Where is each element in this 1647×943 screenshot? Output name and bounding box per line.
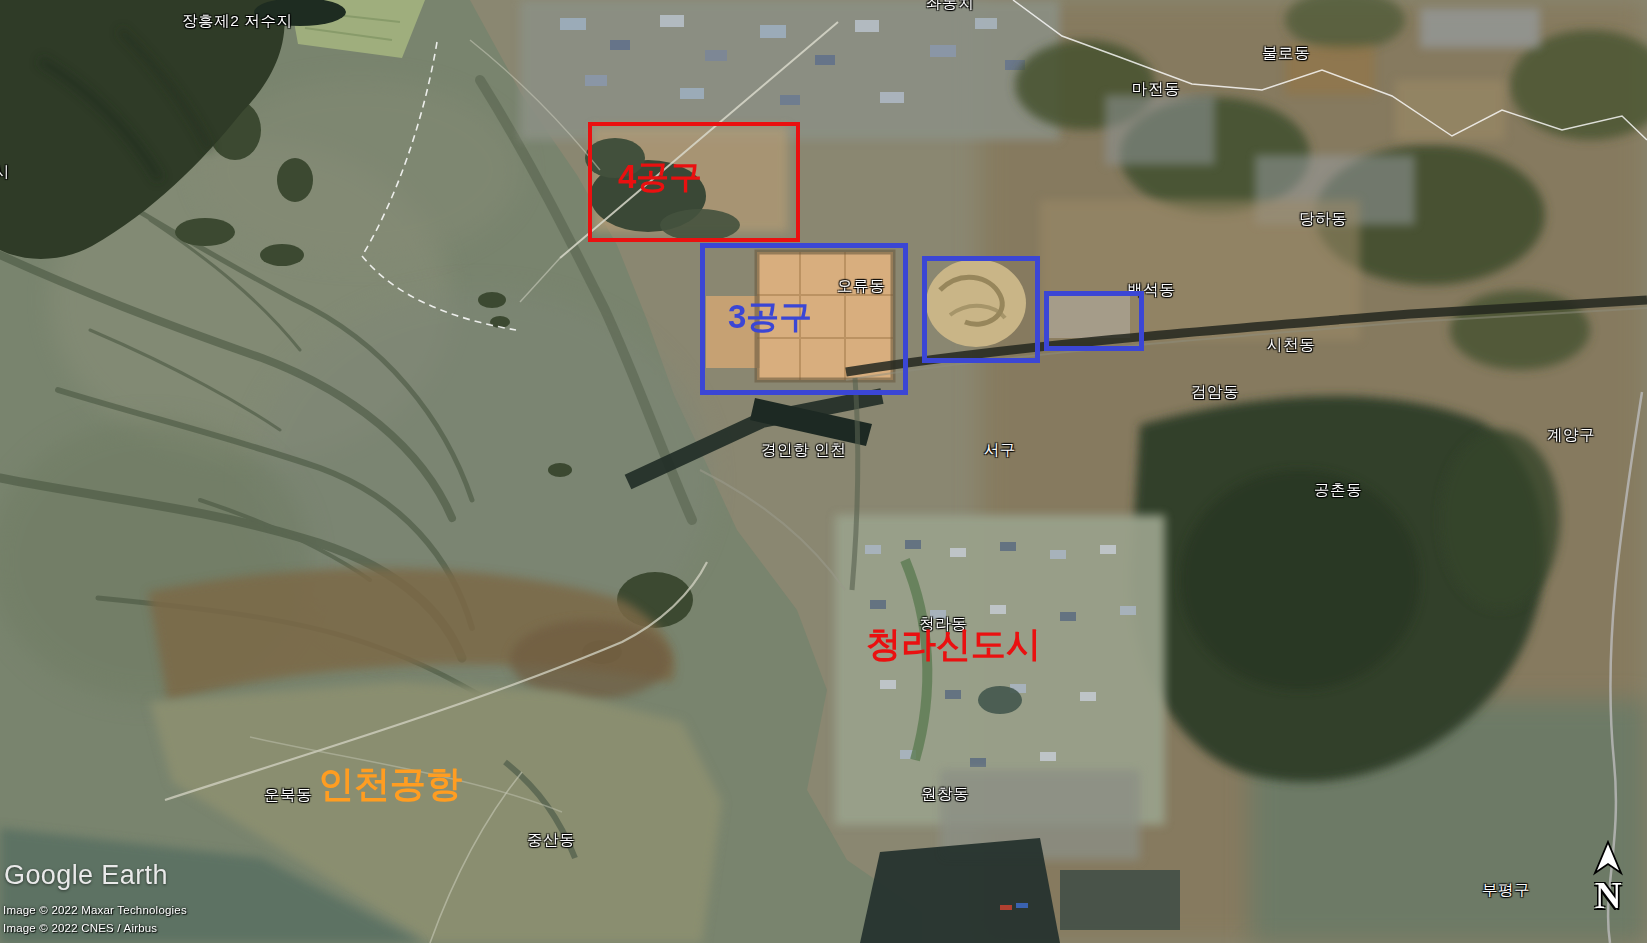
place-label-dangha-dong: 당하동 — [1299, 209, 1347, 230]
terrain-cheongna-urban — [835, 515, 1165, 860]
place-label-jungsan-dong: 중산동 — [527, 830, 575, 851]
place-label-jwadong: 좌동치 — [926, 0, 974, 14]
annotation-label-incheon-airport: 인천공항 — [318, 766, 462, 802]
annotation-box-small-site — [1044, 291, 1144, 351]
place-label-unbuk-dong: 운북동 — [264, 785, 312, 806]
annotation-box-golf-site — [922, 256, 1040, 363]
attribution-maxar: Image © 2022 Maxar Technologies — [3, 904, 187, 916]
place-label-jangheung-reservoir: 장흥제2 저수지 — [182, 11, 293, 32]
place-label-gyeongin-port-incheon: 경인항 인천 — [761, 440, 846, 461]
compass: N — [1584, 840, 1632, 912]
place-label-seo-gu: 서구 — [984, 440, 1016, 461]
place-label-majeon-dong: 마전동 — [1132, 79, 1180, 100]
place-label-bupyeong-gu: 부평구 — [1482, 880, 1530, 901]
place-label-wonchang-dong: 원창동 — [921, 784, 969, 805]
place-label-partial-si: 시 — [0, 162, 10, 183]
place-label-bullo-dong: 불로동 — [1262, 43, 1310, 64]
place-label-geomam-dong: 검암동 — [1191, 382, 1239, 403]
place-label-gongchon-dong: 공촌동 — [1314, 480, 1362, 501]
google-earth-logo: Google Earth — [4, 860, 168, 891]
north-letter: N — [1584, 874, 1632, 917]
satellite-imagery — [0, 0, 1647, 943]
north-arrow-icon — [1584, 840, 1632, 876]
attribution-cnes-airbus: Image © 2022 CNES / Airbus — [3, 922, 157, 934]
annotation-label-section3: 3공구 — [728, 300, 812, 333]
annotation-label-section4: 4공구 — [618, 160, 702, 193]
terrain-urban-top — [520, 0, 1060, 140]
annotation-label-cheongna-new-town: 청라신도시 — [866, 626, 1041, 661]
place-label-gyeyang-gu: 계양구 — [1547, 425, 1595, 446]
google-earth-map-view: 장흥제2 저수지 좌동치 불로동 마전동 당하동 백석동 오류동 시천동 검암동… — [0, 0, 1647, 943]
place-label-sicheon-dong: 시천동 — [1267, 335, 1315, 356]
